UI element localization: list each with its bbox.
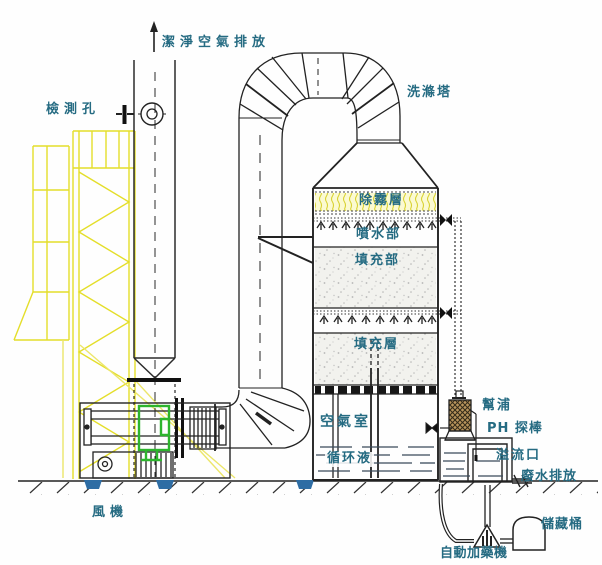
valve-icon — [440, 214, 446, 226]
label-demister-layer: 除霧層 — [359, 194, 404, 209]
valve-icon — [446, 307, 452, 319]
mount-foot — [156, 480, 174, 489]
up-arrow-icon — [150, 21, 158, 52]
valve-icon — [432, 423, 438, 433]
valve-icon — [446, 214, 452, 226]
label-overflow-port: 溢流口 — [496, 449, 541, 464]
valve-icon — [440, 307, 446, 319]
recirculation-pipe — [440, 214, 461, 398]
label-fan: 風機 — [92, 506, 128, 521]
support-grate — [313, 386, 438, 394]
valve-icon — [426, 423, 432, 433]
label-clean-air-outlet: 潔淨空氣排放 — [162, 36, 270, 51]
diagram-canvas: 潔淨空氣排放 檢測孔 洗滌塔 除霧層 噴水部 填充部 填充層 空氣室 循环液 幫… — [0, 0, 602, 565]
label-wastewater-discharge: 廢水排放 — [521, 470, 577, 485]
label-packing-layer: 填充層 — [354, 338, 399, 353]
mount-foot — [84, 480, 102, 489]
label-air-chamber: 空氣室 — [320, 414, 371, 430]
inspection-port — [116, 103, 166, 125]
pump-unit — [426, 391, 475, 440]
scrubber-diagram-drawing — [0, 0, 602, 565]
label-storage-tank: 儲藏桶 — [541, 518, 583, 533]
duct-elbow-bottom — [175, 388, 310, 458]
label-ph-probe: PH 探棒 — [487, 422, 543, 437]
label-pump: 幫浦 — [482, 399, 512, 414]
label-auto-dosing-machine: 自動加藥機 — [440, 547, 508, 562]
label-inspection-port: 檢測孔 — [46, 103, 100, 118]
mount-foot — [296, 480, 314, 489]
label-spray-section: 噴水部 — [356, 228, 401, 243]
label-packing-section: 填充部 — [355, 254, 400, 269]
label-circulating-liquid: 循环液 — [325, 452, 374, 467]
label-scrubber-tower: 洗滌塔 — [407, 86, 452, 101]
